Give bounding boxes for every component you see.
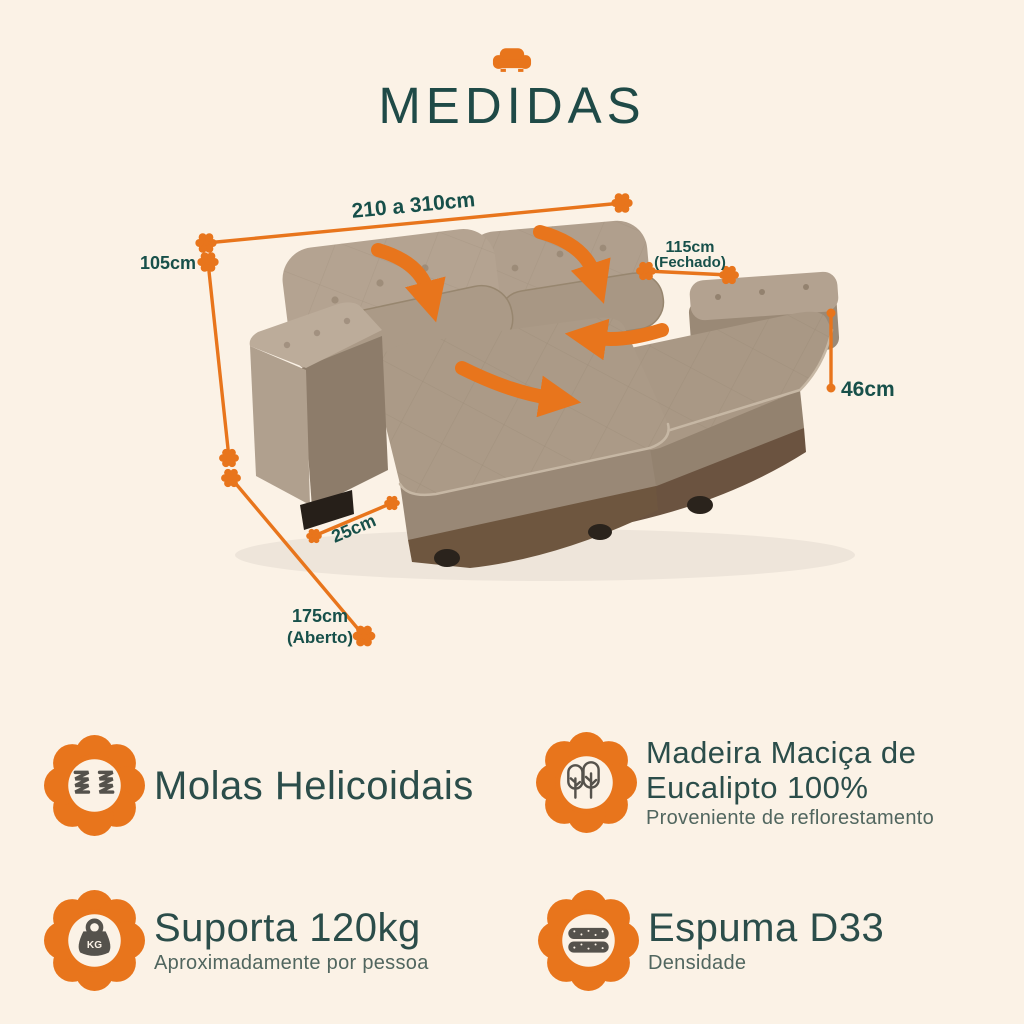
feature-foam-subtitle: Densidade <box>648 952 884 975</box>
feature-wood-title-line1: Madeira Maciça de <box>646 735 934 770</box>
sofa-measurement-diagram: 210 a 310cm 105cm 115cm (Fechado) 46cm 2… <box>0 0 1024 1024</box>
foam-icon <box>538 890 639 991</box>
feature-springs-title: Molas Helicoidais <box>154 764 474 808</box>
feature-weight-subtitle: Aproximadamente por pessoa <box>154 952 429 975</box>
feature-foam-title: Espuma D33 <box>648 906 884 950</box>
label-depth-open-note: (Aberto) <box>287 628 353 647</box>
feature-wood-title-line2: Eucalipto 100% <box>646 770 934 805</box>
feature-weight-title: Suporta 120kg <box>154 906 429 950</box>
label-depth-closed-note: (Fechado) <box>654 254 726 271</box>
feature-weight: KG Suporta 120kg Aproximadamente por pes… <box>44 890 429 991</box>
feature-foam: Espuma D33 Densidade <box>538 890 884 991</box>
label-depth-open: 175cm <box>292 606 348 626</box>
infographic-canvas: MEDIDAS <box>0 0 1024 1024</box>
measure-line-depth-closed <box>646 271 729 275</box>
trees-icon <box>536 732 637 833</box>
label-seat-height: 46cm <box>841 378 895 401</box>
feature-wood-subtitle: Proveniente de reflorestamento <box>646 807 934 830</box>
springs-icon <box>44 735 145 836</box>
weight-icon: KG <box>44 890 145 991</box>
measure-line-height <box>208 262 229 458</box>
kg-label: KG <box>87 940 102 951</box>
sofa-illustration <box>235 218 855 581</box>
feature-springs: Molas Helicoidais <box>44 735 474 836</box>
sofa-left-armrest <box>250 302 388 530</box>
label-height: 105cm <box>140 253 196 273</box>
feature-wood: Madeira Maciça de Eucalipto 100% Proveni… <box>536 732 934 833</box>
